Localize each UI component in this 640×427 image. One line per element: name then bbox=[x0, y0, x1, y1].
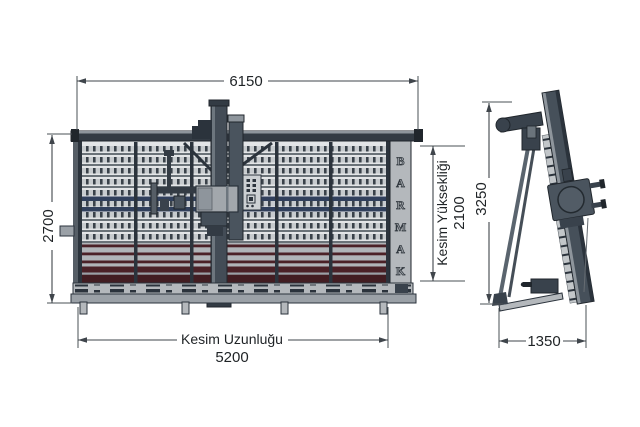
side-depth-value: 1350 bbox=[527, 333, 560, 350]
top-motor-housing bbox=[192, 126, 212, 139]
handle bbox=[600, 199, 606, 209]
dimension-cutting-length: Kesim Uzunluğu 5200 bbox=[78, 307, 388, 366]
foot bbox=[380, 302, 387, 314]
brand-panel: B A R M A K bbox=[390, 141, 411, 283]
panel-saw-drawing: B A R M A K bbox=[0, 0, 640, 427]
tilted-column-group bbox=[532, 85, 624, 305]
guide-column bbox=[229, 115, 243, 240]
side-knob bbox=[60, 226, 74, 236]
cutting-length-value: 5200 bbox=[215, 349, 248, 366]
brand-letter: M bbox=[395, 220, 406, 234]
dimension-cutting-height: Kesim Yüksekliği 2100 bbox=[420, 146, 468, 281]
foot bbox=[80, 302, 87, 314]
lower-clamp bbox=[531, 279, 558, 293]
lower-slats bbox=[82, 243, 386, 283]
dimension-side-depth: 1350 bbox=[499, 305, 586, 350]
cutting-length-label: Kesim Uzunluğu bbox=[181, 331, 283, 347]
brand-letter: A bbox=[396, 242, 405, 256]
foot bbox=[182, 302, 189, 314]
overall-height-value: 2700 bbox=[40, 209, 57, 242]
dimension-overall-height: 2700 bbox=[40, 134, 72, 303]
foot bbox=[281, 302, 288, 314]
pusher-rod bbox=[167, 154, 171, 187]
control-panel bbox=[243, 175, 261, 210]
overall-width-value: 6150 bbox=[229, 73, 262, 90]
handle bbox=[599, 179, 605, 189]
brand-letter: K bbox=[396, 264, 406, 278]
side-view bbox=[492, 85, 624, 311]
brand-letter: B bbox=[396, 154, 404, 168]
top-rail bbox=[71, 129, 423, 142]
support-arm bbox=[154, 187, 196, 194]
brand-letter: A bbox=[396, 176, 405, 190]
panel-foot bbox=[395, 284, 408, 293]
top-motor bbox=[198, 120, 212, 127]
cutting-height-label: Kesim Yüksekliği bbox=[434, 160, 450, 266]
brand-letter: R bbox=[396, 198, 405, 212]
side-height-value: 3250 bbox=[473, 182, 490, 215]
saw-motor bbox=[201, 212, 227, 226]
saw-knob bbox=[562, 168, 573, 181]
cutting-height-value: 2100 bbox=[451, 196, 468, 229]
arm-end-cap bbox=[496, 118, 510, 132]
front-view: B A R M A K bbox=[60, 100, 423, 314]
technical-drawing-canvas: B A R M A K bbox=[0, 0, 640, 427]
dimension-overall-width: 6150 bbox=[77, 73, 418, 130]
